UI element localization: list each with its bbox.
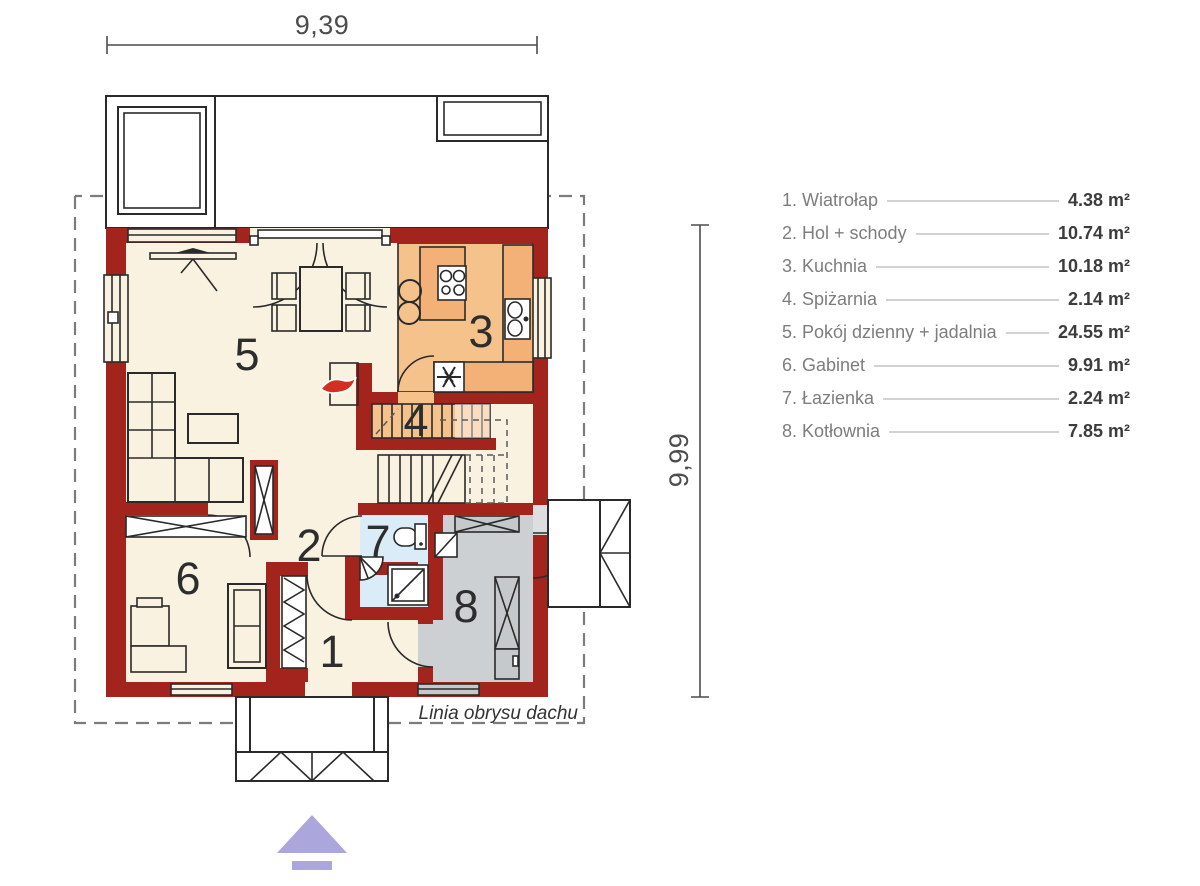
legend-label: 7. Łazienka — [782, 388, 874, 409]
dimension-height: 9,99 — [664, 225, 709, 697]
column-cabinet — [255, 466, 273, 534]
wardrobe — [282, 576, 306, 668]
legend-connector — [883, 398, 1059, 400]
dining-set — [272, 267, 370, 331]
room-number-1: 1 — [319, 626, 344, 677]
legend-area-value: 4.38 m² — [1068, 190, 1130, 211]
legend-label: 6. Gabinet — [782, 355, 865, 376]
legend-area-value: 10.74 m² — [1058, 223, 1130, 244]
legend-connector — [876, 266, 1049, 268]
room-number-2: 2 — [296, 520, 321, 571]
legend-row-7: 7. Łazienka 2.24 m² — [782, 382, 1130, 415]
legend-row-8: 8. Kotłownia 7.85 m² — [782, 415, 1130, 448]
legend-connector — [916, 233, 1049, 235]
legend-row-5: 5. Pokój dzienny + jadalnia 24.55 m² — [782, 316, 1130, 349]
legend-area-value: 2.14 m² — [1068, 289, 1130, 310]
legend-area-value: 10.18 m² — [1058, 256, 1130, 277]
legend-row-2: 2. Hol + schody 10.74 m² — [782, 217, 1130, 250]
legend-row-1: 1. Wiatrołap 4.38 m² — [782, 184, 1130, 217]
legend-label: 5. Pokój dzienny + jadalnia — [782, 322, 997, 343]
terrace — [106, 96, 548, 228]
legend-area-value: 2.24 m² — [1068, 388, 1130, 409]
legend-label: 1. Wiatrołap — [782, 190, 878, 211]
dimension-height-label: 9,99 — [664, 433, 694, 488]
dimension-width-label: 9,39 — [295, 10, 350, 40]
north-arrow-icon — [277, 815, 347, 870]
room-number-6: 6 — [175, 553, 200, 604]
legend-area-value: 24.55 m² — [1058, 322, 1130, 343]
dimension-width: 9,39 — [107, 10, 537, 54]
legend-connector — [886, 299, 1059, 301]
side-porch — [548, 500, 630, 607]
room-number-7: 7 — [365, 516, 390, 567]
room-number-8: 8 — [453, 581, 478, 632]
floor-plan-drawing: 5 3 4 2 7 8 6 1 9,39 9,99 Linia obrysu d… — [0, 0, 760, 886]
room-number-3: 3 — [468, 306, 493, 357]
legend-connector — [1006, 332, 1049, 334]
legend-row-6: 6. Gabinet 9.91 m² — [782, 349, 1130, 382]
legend-label: 4. Spiżarnia — [782, 289, 877, 310]
legend-connector — [874, 365, 1059, 367]
room-number-5: 5 — [234, 329, 259, 380]
room-legend: 1. Wiatrołap 4.38 m² 2. Hol + schody 10.… — [782, 184, 1130, 448]
legend-area-value: 7.85 m² — [1068, 421, 1130, 442]
roof-outline-label: Linia obrysu dachu — [419, 703, 579, 724]
legend-area-value: 9.91 m² — [1068, 355, 1130, 376]
legend-connector — [889, 431, 1059, 433]
room-number-4: 4 — [403, 395, 428, 446]
legend-row-4: 4. Spiżarnia 2.14 m² — [782, 283, 1130, 316]
floor-plan-page: 5 3 4 2 7 8 6 1 9,39 9,99 Linia obrysu d… — [0, 0, 1200, 886]
legend-connector — [887, 200, 1059, 202]
legend-label: 2. Hol + schody — [782, 223, 907, 244]
coffee-table — [188, 414, 238, 443]
entrance-porch — [236, 697, 388, 781]
legend-row-3: 3. Kuchnia 10.18 m² — [782, 250, 1130, 283]
legend-label: 8. Kotłownia — [782, 421, 880, 442]
legend-label: 3. Kuchnia — [782, 256, 867, 277]
